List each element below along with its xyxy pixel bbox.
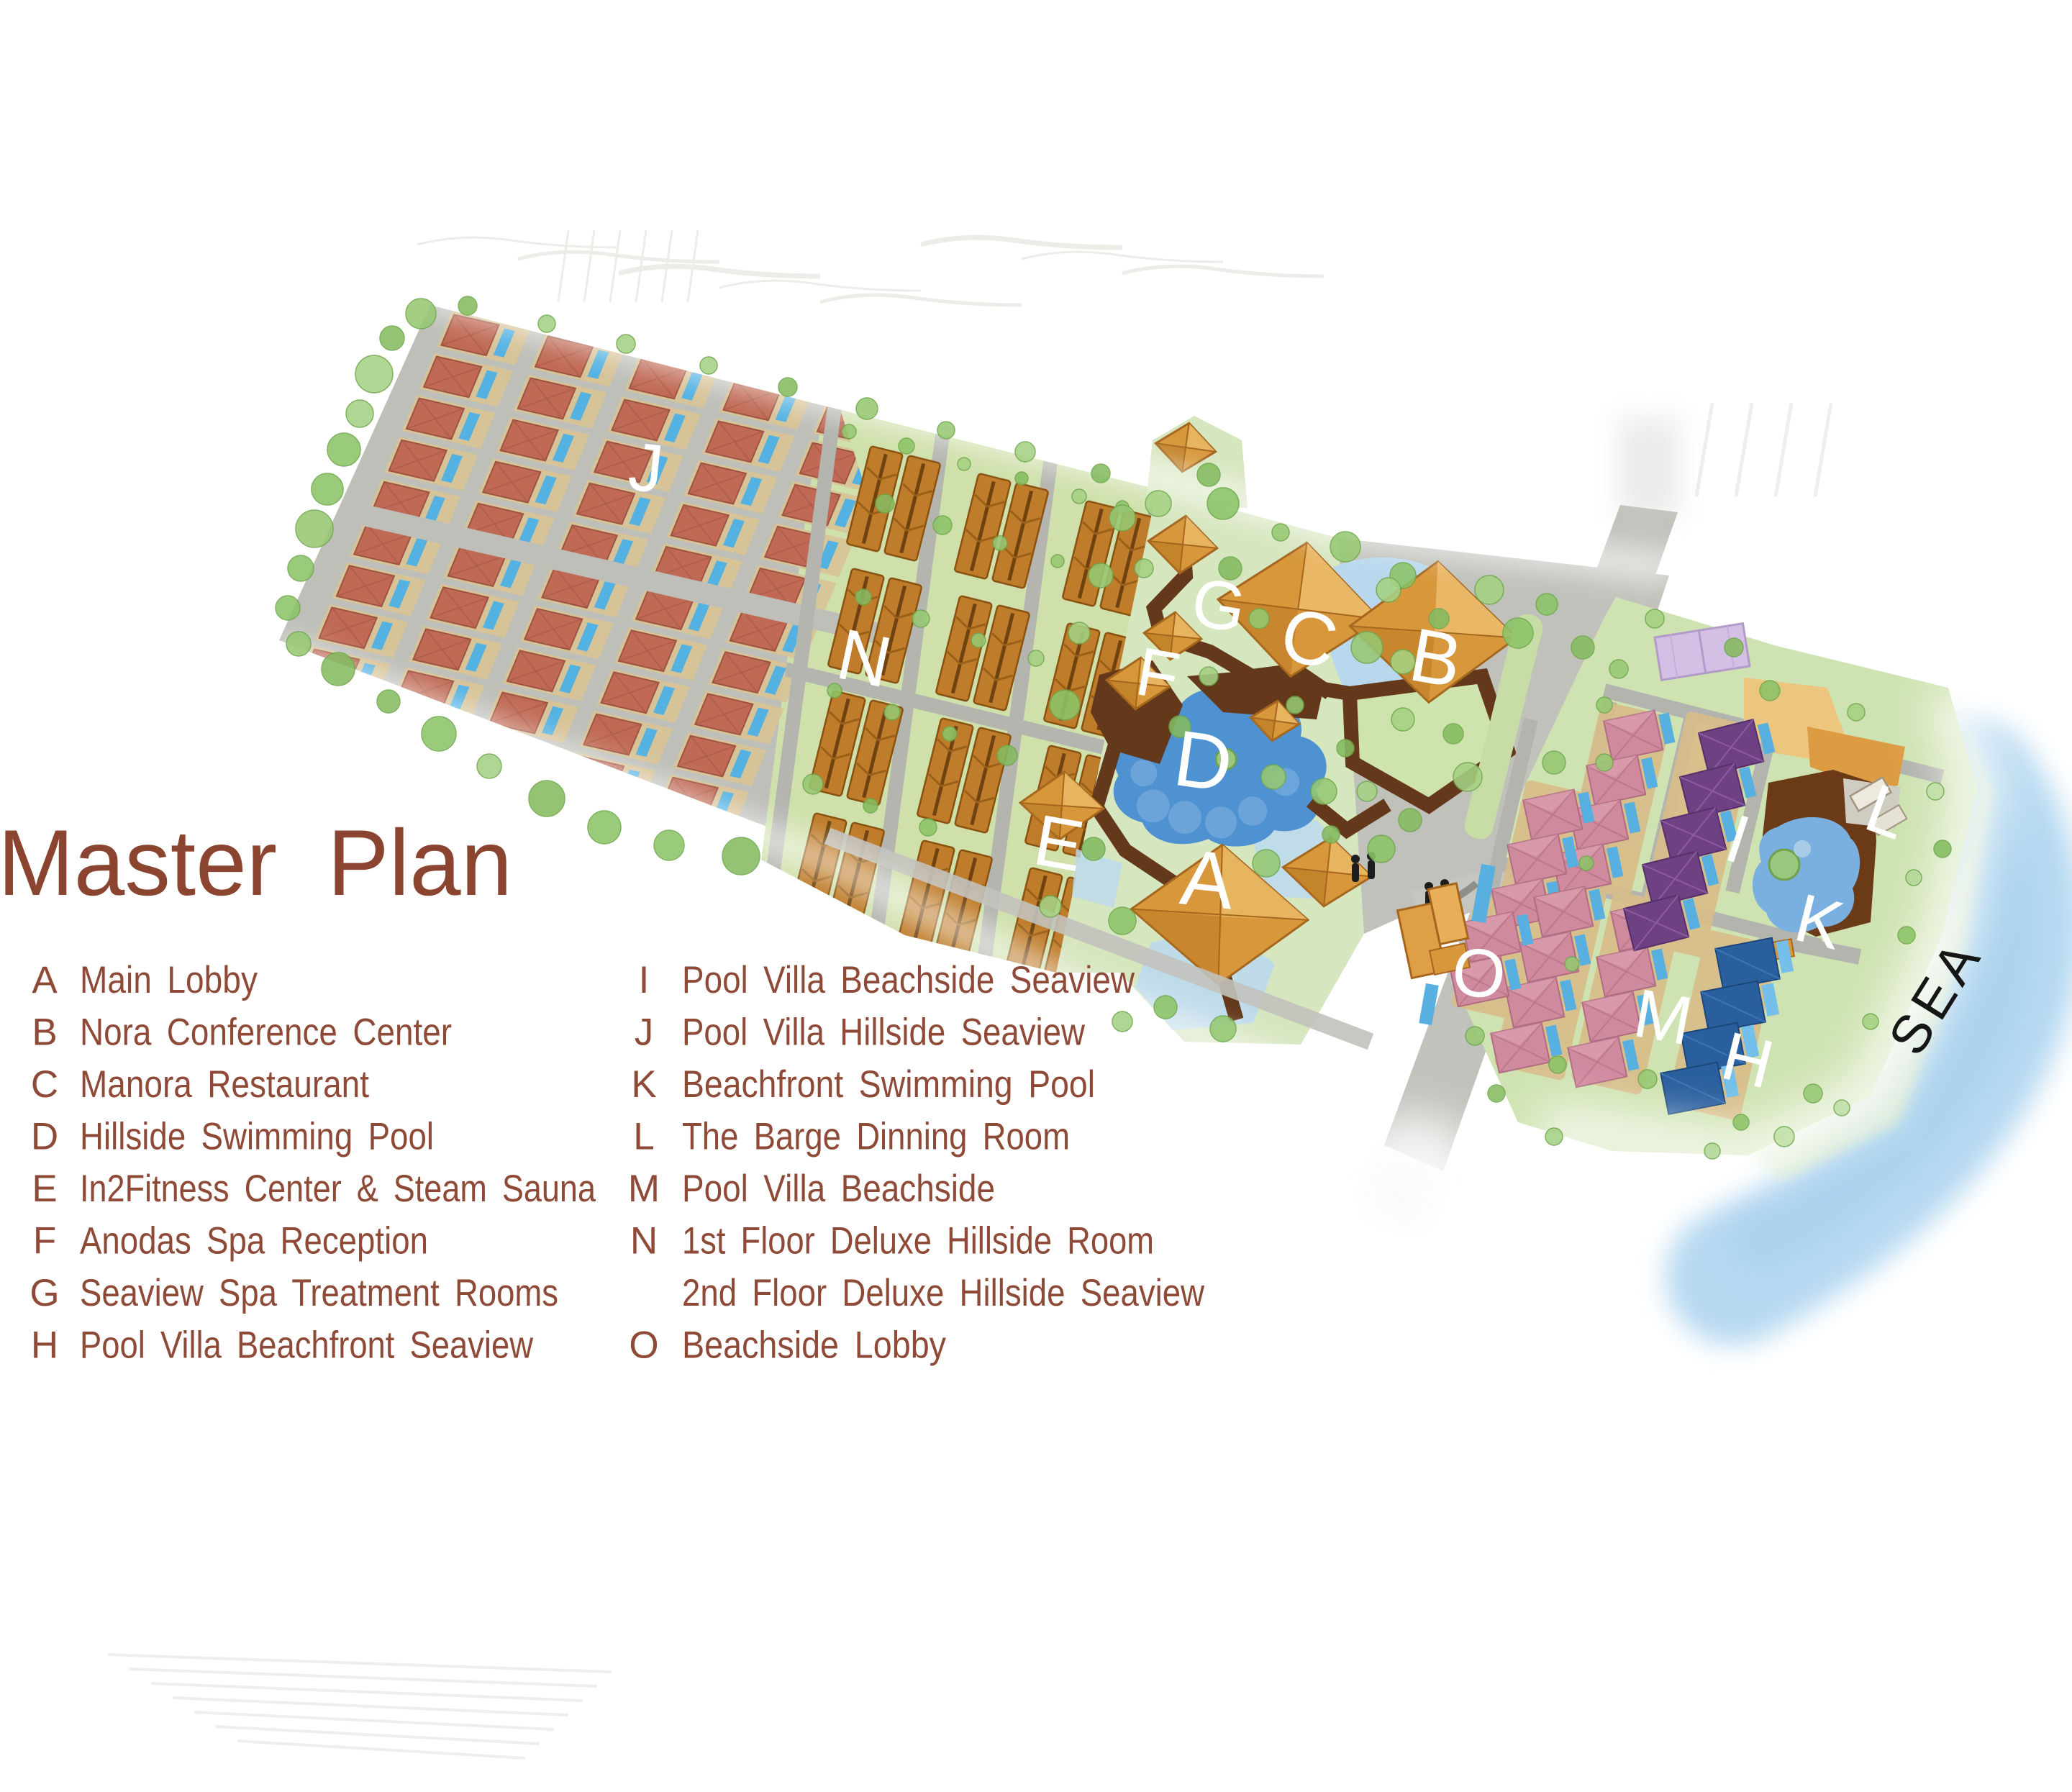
svg-text:In2Fitness Center & Steam Saun: In2Fitness Center & Steam Sauna: [80, 1168, 596, 1210]
svg-text:Seaview Spa Treatment Rooms: Seaview Spa Treatment Rooms: [80, 1272, 558, 1314]
svg-text:G: G: [29, 1272, 59, 1314]
svg-text:2nd Floor Deluxe Hillside Seav: 2nd Floor Deluxe Hillside Seaview: [682, 1272, 1205, 1314]
svg-text:O: O: [1449, 933, 1509, 1014]
svg-text:Hillside Swimming Pool: Hillside Swimming Pool: [80, 1116, 434, 1158]
svg-text:Plan: Plan: [327, 810, 512, 915]
svg-text:Beachfront Swimming Pool: Beachfront Swimming Pool: [682, 1063, 1095, 1106]
svg-text:Pool Villa Beachside Seaview: Pool Villa Beachside Seaview: [682, 959, 1135, 1001]
svg-text:F: F: [33, 1220, 56, 1263]
svg-text:K: K: [631, 1063, 656, 1106]
svg-text:Pool Villa Hillside Seaview: Pool Villa Hillside Seaview: [682, 1011, 1086, 1054]
svg-text:D: D: [1169, 714, 1238, 809]
svg-text:D: D: [31, 1116, 58, 1158]
svg-text:Manora Restaurant: Manora Restaurant: [80, 1063, 369, 1106]
svg-text:B: B: [32, 1011, 57, 1054]
svg-text:Pool Villa Beachside: Pool Villa Beachside: [682, 1168, 995, 1210]
svg-text:Nora Conference Center: Nora Conference Center: [80, 1011, 452, 1054]
svg-text:E: E: [32, 1168, 57, 1210]
svg-text:Anodas Spa Reception: Anodas Spa Reception: [80, 1220, 428, 1263]
svg-text:O: O: [629, 1324, 658, 1367]
svg-text:Main Lobby: Main Lobby: [80, 959, 258, 1001]
svg-text:N: N: [630, 1220, 658, 1263]
svg-text:C: C: [31, 1063, 58, 1106]
svg-text:L: L: [633, 1116, 654, 1158]
svg-text:H: H: [31, 1324, 58, 1367]
svg-text:Pool Villa Beachfront Seaview: Pool Villa Beachfront Seaview: [80, 1324, 534, 1367]
svg-text:The Barge Dinning Room: The Barge Dinning Room: [682, 1116, 1070, 1158]
svg-text:J: J: [635, 1011, 654, 1054]
svg-text:Master: Master: [0, 810, 277, 915]
svg-text:Beachside Lobby: Beachside Lobby: [682, 1324, 946, 1367]
svg-text:M: M: [628, 1168, 660, 1210]
svg-text:A: A: [1176, 833, 1238, 927]
svg-text:1st Floor Deluxe Hillside Room: 1st Floor Deluxe Hillside Room: [682, 1220, 1154, 1263]
svg-text:A: A: [32, 959, 58, 1001]
svg-text:I: I: [639, 959, 650, 1001]
